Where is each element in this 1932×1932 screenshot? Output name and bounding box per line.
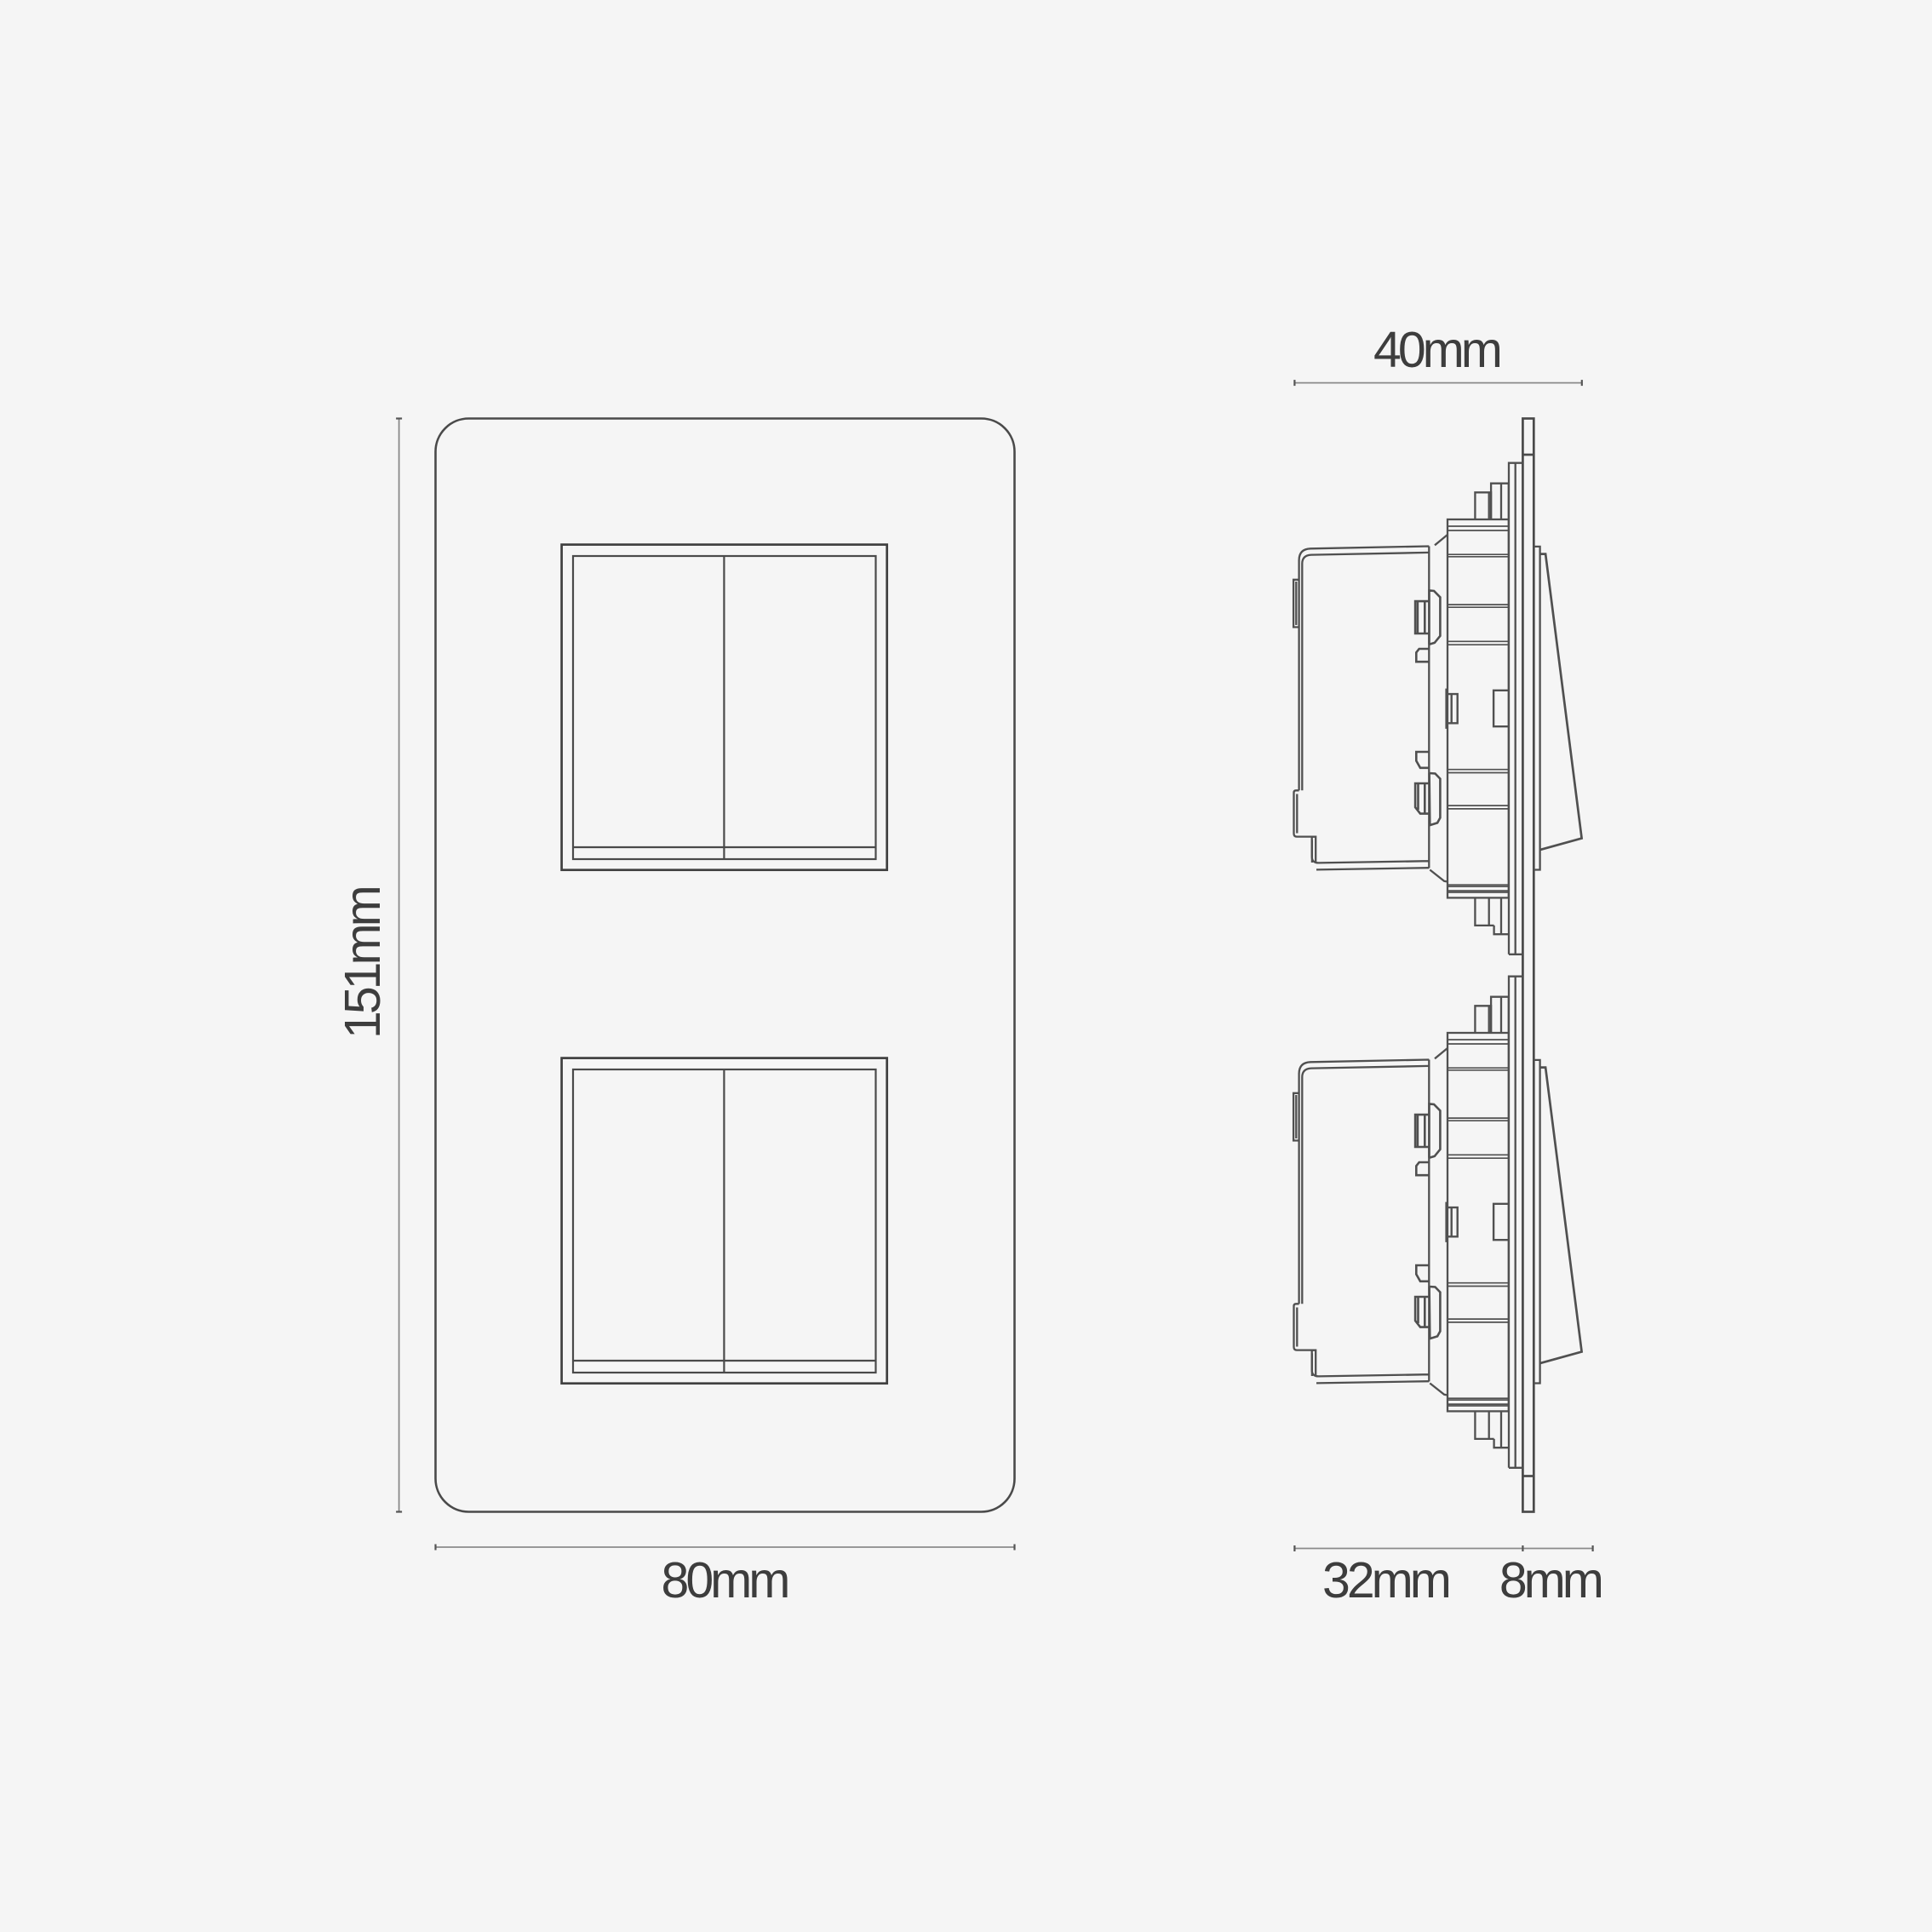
svg-text:151mm: 151mm bbox=[335, 887, 391, 1039]
svg-text:32mm: 32mm bbox=[1322, 1552, 1449, 1608]
svg-text:80mm: 80mm bbox=[662, 1552, 788, 1608]
svg-text:8mm: 8mm bbox=[1499, 1552, 1602, 1608]
svg-text:40mm: 40mm bbox=[1373, 322, 1500, 378]
